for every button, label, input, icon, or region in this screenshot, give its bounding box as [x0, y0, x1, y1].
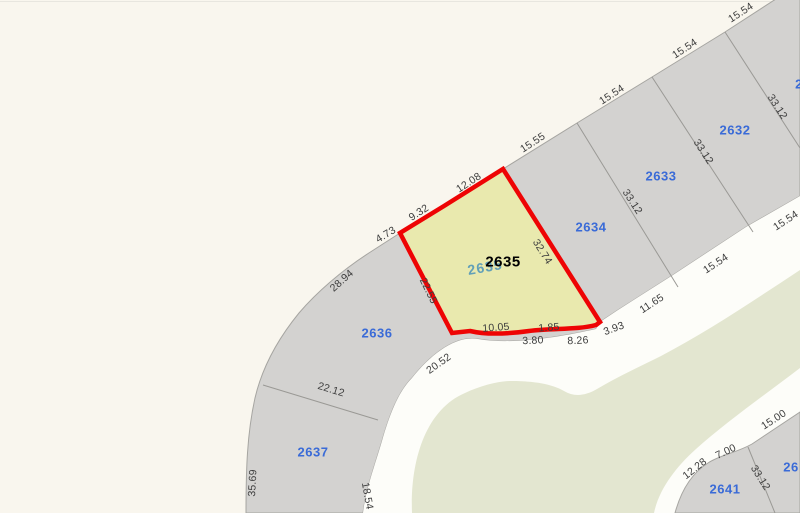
parcel-map[interactable]: 15.5415.5415.5415.5512.089.324.7328.9422… [0, 0, 800, 513]
parcel-map-canvas [0, 0, 800, 513]
